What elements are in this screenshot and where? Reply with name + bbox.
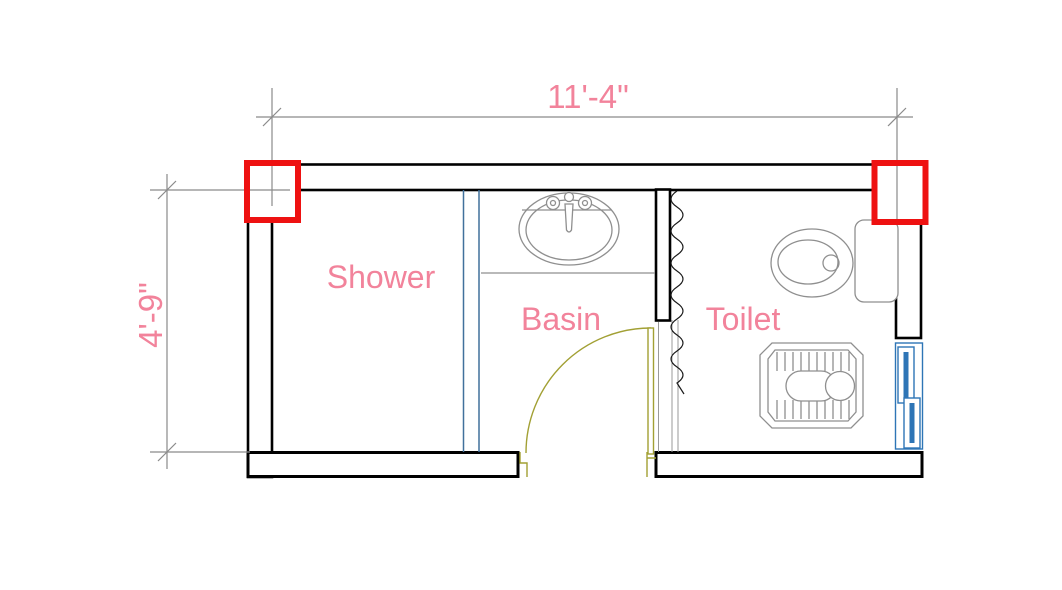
window-glass-lower	[910, 403, 915, 443]
room-label-shower: Shower	[327, 259, 436, 295]
glass-partition	[464, 190, 480, 452]
door-jamb-left	[520, 452, 527, 477]
faucet-spout	[565, 204, 573, 232]
dimension-left-label: 4'-9"	[132, 282, 169, 348]
window-symbol	[896, 343, 923, 449]
floor-plan-canvas: 11'-4" 4'-9" Shower Basin Toilet	[0, 0, 1062, 590]
bottom-wall-right	[656, 453, 922, 477]
faucet-handle-left	[547, 197, 560, 210]
room-label-toilet: Toilet	[706, 301, 781, 337]
right-wall-upper	[896, 222, 921, 338]
sink-symbol	[481, 193, 655, 274]
faucet-hub	[565, 193, 574, 202]
squat-toilet-symbol	[760, 343, 863, 428]
left-wall	[248, 221, 272, 477]
toilet-tank	[855, 220, 898, 302]
toilet-bowl-outer	[771, 229, 853, 297]
dimension-top-label: 11'-4"	[547, 78, 629, 115]
top-wall	[298, 165, 874, 191]
floor-plan-page: 11'-4" 4'-9" Shower Basin Toilet	[0, 0, 1062, 590]
window-glass-upper	[904, 352, 909, 398]
room-label-basin: Basin	[521, 301, 601, 337]
highlighted-column-top-right	[875, 163, 926, 222]
door-swing-arc	[526, 328, 651, 453]
bottom-wall-left	[248, 453, 518, 477]
partition-wall-basin-toilet	[656, 190, 670, 321]
door-symbol	[520, 328, 656, 477]
door-leaf	[648, 328, 654, 454]
toilet-symbol	[771, 220, 898, 302]
faucet-handle-right	[579, 197, 592, 210]
squat-pan-head	[826, 372, 855, 401]
